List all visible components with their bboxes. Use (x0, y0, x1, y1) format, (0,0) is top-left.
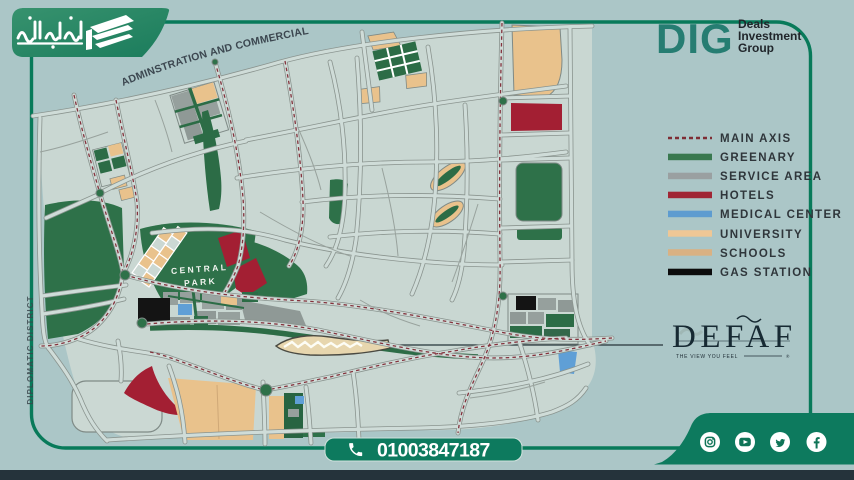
svg-text:THE VIEW YOU FEEL: THE VIEW YOU FEEL (676, 354, 738, 360)
svg-text:HOTELS: HOTELS (720, 190, 775, 202)
svg-text:MEDICAL CENTER: MEDICAL CENTER (720, 209, 842, 221)
svg-text:SERVICE AREA: SERVICE AREA (720, 171, 822, 183)
svg-text:Group: Group (738, 41, 774, 55)
svg-text:DIPLOMATIC DISTRICT: DIPLOMATIC DISTRICT (26, 295, 35, 404)
svg-text:01003847187: 01003847187 (377, 440, 490, 462)
svg-text:DEFAF: DEFAF (672, 319, 797, 355)
svg-text:GAS STATION: GAS STATION (720, 267, 812, 279)
svg-text:SCHOOLS: SCHOOLS (720, 248, 787, 260)
svg-text:GREENARY: GREENARY (720, 152, 796, 164)
svg-text:UNIVERSITY: UNIVERSITY (720, 229, 803, 241)
svg-text:MAIN AXIS: MAIN AXIS (720, 133, 792, 145)
svg-text:DIG: DIG (656, 15, 734, 62)
